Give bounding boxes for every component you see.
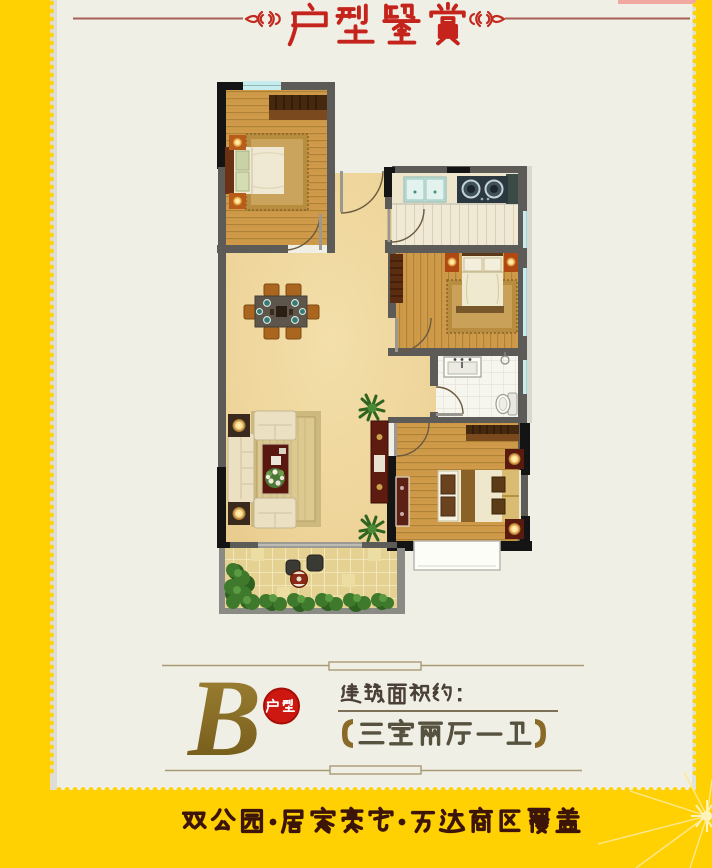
svg-text:B: B: [186, 657, 261, 779]
